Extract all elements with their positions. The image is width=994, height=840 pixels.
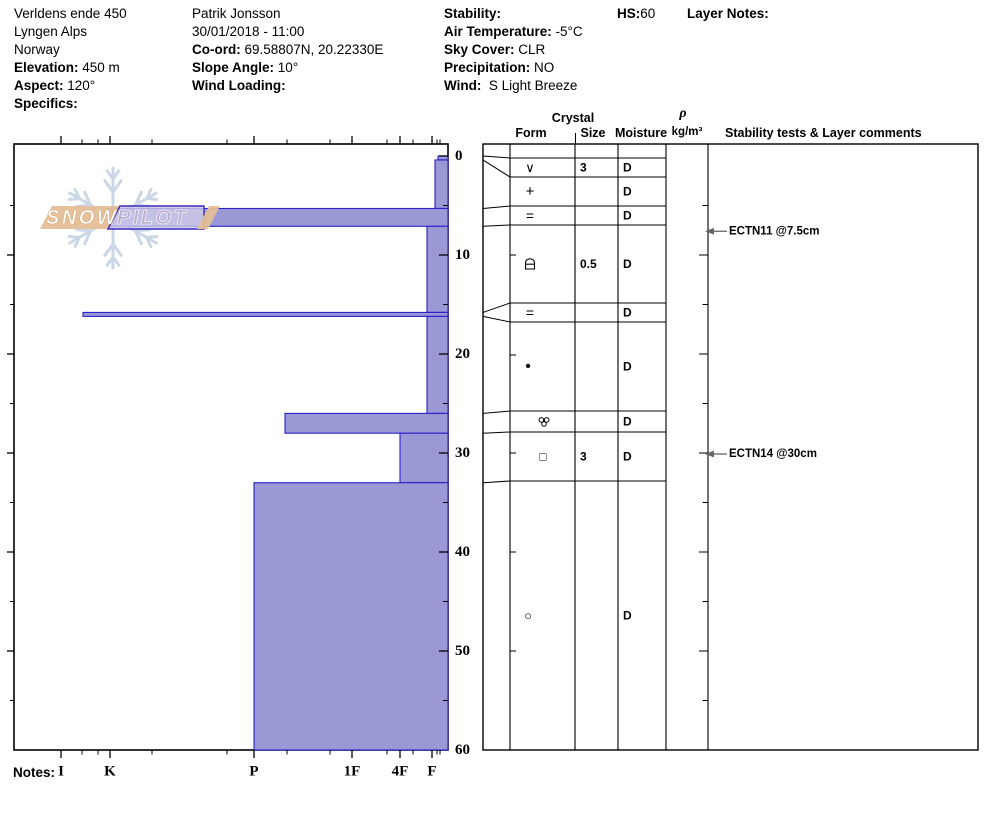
layer-funnel-line [483,411,510,413]
layer-funnel-line [483,432,510,433]
moisture-value: D [623,257,632,271]
hardness-axis-label: F [427,764,436,780]
hardness-axis-label: 1F [344,764,361,780]
moisture-value: D [623,209,632,223]
hardness-axis-label: I [58,764,64,780]
annotation-arrow-head [705,228,714,235]
layer-funnel-line [483,206,510,208]
density-header-rho: ρ [678,106,686,121]
notes-label: Notes: [13,765,55,780]
snowpilot-logo-text: SNOW [46,207,118,229]
moisture-value: D [623,161,632,175]
snowpilot-report: Verldens ende 450Lyngen AlpsNorwayElevat… [0,0,994,840]
form-header: Form [515,126,546,140]
moisture-value: D [623,415,632,429]
stability-test-annotation: ECTN14 @30cm [729,448,817,460]
density-header-units: kg/m³ [672,126,703,138]
hardness-bar [285,413,448,433]
layer-funnel-line [483,316,510,322]
hardness-bar [435,160,448,209]
hardness-bar [83,312,448,316]
hardness-axis-label: P [249,764,258,780]
size-header: Size [580,126,605,140]
crystal-header: Crystal [552,111,594,125]
annotation-arrow-head [705,451,714,458]
moisture-value: D [623,306,632,320]
hardness-axis-label: K [104,764,116,780]
hardness-bar [427,316,448,413]
grain-size-value: 3 [580,450,587,464]
moisture-header: Moisture [615,126,667,140]
crystal-form-symbol: + [526,183,535,200]
hardness-bar [427,226,448,312]
crystal-form-symbol: ∨ [525,160,535,175]
layer-funnel-line [483,481,510,483]
hardness-bar [254,483,448,750]
depth-axis-label: 40 [455,544,470,560]
layer-funnel-line [483,156,510,158]
hardness-bar [400,433,448,483]
layer-funnel-line [483,225,510,226]
grain-size-value: 0.5 [580,257,597,271]
crystal-form-symbol: ○ [524,608,532,623]
stability-test-annotation: ECTN11 @7.5cm [729,225,819,237]
hardness-axis-label: 4F [392,764,409,780]
crystal-form-symbol: • [525,358,531,375]
depth-axis-label: 10 [455,247,470,263]
depth-axis-label: 20 [455,346,470,362]
snow-profile-chart: SNOWPILOTIKP1F4FF0102030405060CrystalFor… [0,0,994,840]
snowpilot-logo-text: PILOT [117,207,188,229]
depth-axis-label: 60 [455,742,470,758]
crystal-form-symbol: □ [539,450,546,464]
moisture-value: D [623,450,632,464]
crystal-form-symbol [542,422,547,427]
depth-axis-label: 30 [455,445,470,461]
layer-funnel-line [483,160,510,177]
moisture-value: D [623,360,632,374]
comments-header: Stability tests & Layer comments [725,126,922,140]
moisture-value: D [623,185,632,199]
grain-size-value: 3 [580,161,587,175]
depth-axis-label: 0 [455,148,463,164]
depth-axis-label: 50 [455,643,470,659]
crystal-form-symbol: = [526,208,534,224]
moisture-value: D [623,609,632,623]
layer-funnel-line [483,303,510,312]
crystal-form-symbol: = [526,305,534,321]
